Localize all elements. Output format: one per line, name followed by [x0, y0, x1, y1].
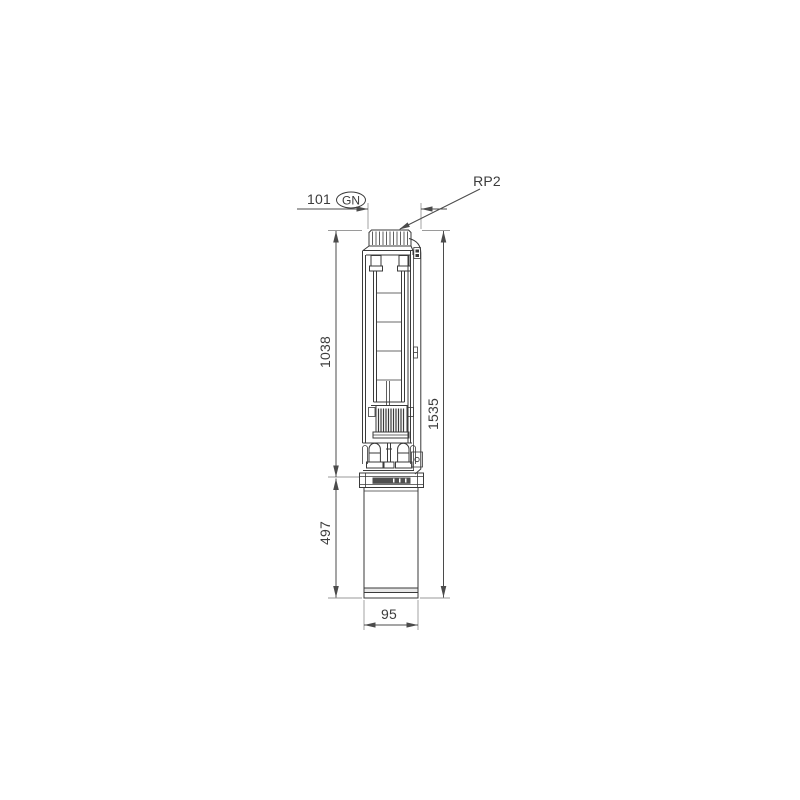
chamber-stack	[374, 271, 405, 405]
dimension-95-label: 95	[381, 607, 397, 621]
gn-variant-badge: GN	[336, 192, 366, 209]
suction-strainer	[369, 406, 414, 439]
rp2-thread-label: RP2	[473, 174, 501, 188]
nameplate	[373, 478, 411, 484]
cable-guard	[409, 239, 423, 475]
pump-outline	[360, 230, 424, 598]
dimension-1535-label: 1535	[426, 398, 440, 430]
motor-body	[364, 488, 418, 599]
dimension-1038-label: 1038	[318, 336, 332, 368]
dimension-101-label: 101	[307, 192, 331, 206]
dimension-497-label: 497	[318, 521, 332, 545]
rp2-leader-line	[399, 189, 480, 230]
motor-band	[365, 588, 418, 593]
dimension-95	[364, 622, 418, 627]
thread-connection	[369, 230, 411, 246]
dimension-1535	[441, 231, 447, 598]
discharge-chamber	[363, 246, 413, 271]
motor-flange	[360, 473, 424, 488]
pump-dimension-drawing: 101 GN RP2 1038 497 1535 95	[0, 0, 800, 800]
pump-drawing-svg	[0, 0, 800, 800]
dimension-101	[297, 206, 447, 211]
dimension-497	[333, 479, 339, 598]
dimension-1038	[333, 231, 339, 477]
motor-bracket	[363, 443, 416, 471]
